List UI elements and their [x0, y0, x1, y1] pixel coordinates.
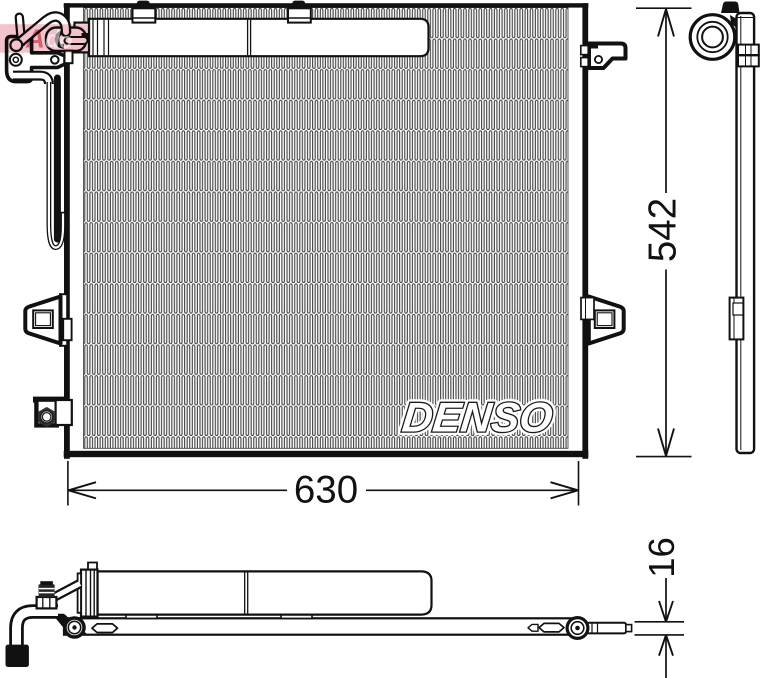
svg-text:DENSO: DENSO [400, 394, 555, 441]
svg-text:A: A [25, 24, 45, 54]
svg-text:630: 630 [294, 469, 358, 512]
svg-text:542: 542 [642, 198, 685, 262]
svg-text:16: 16 [641, 537, 682, 578]
svg-text:o: o [59, 28, 72, 53]
